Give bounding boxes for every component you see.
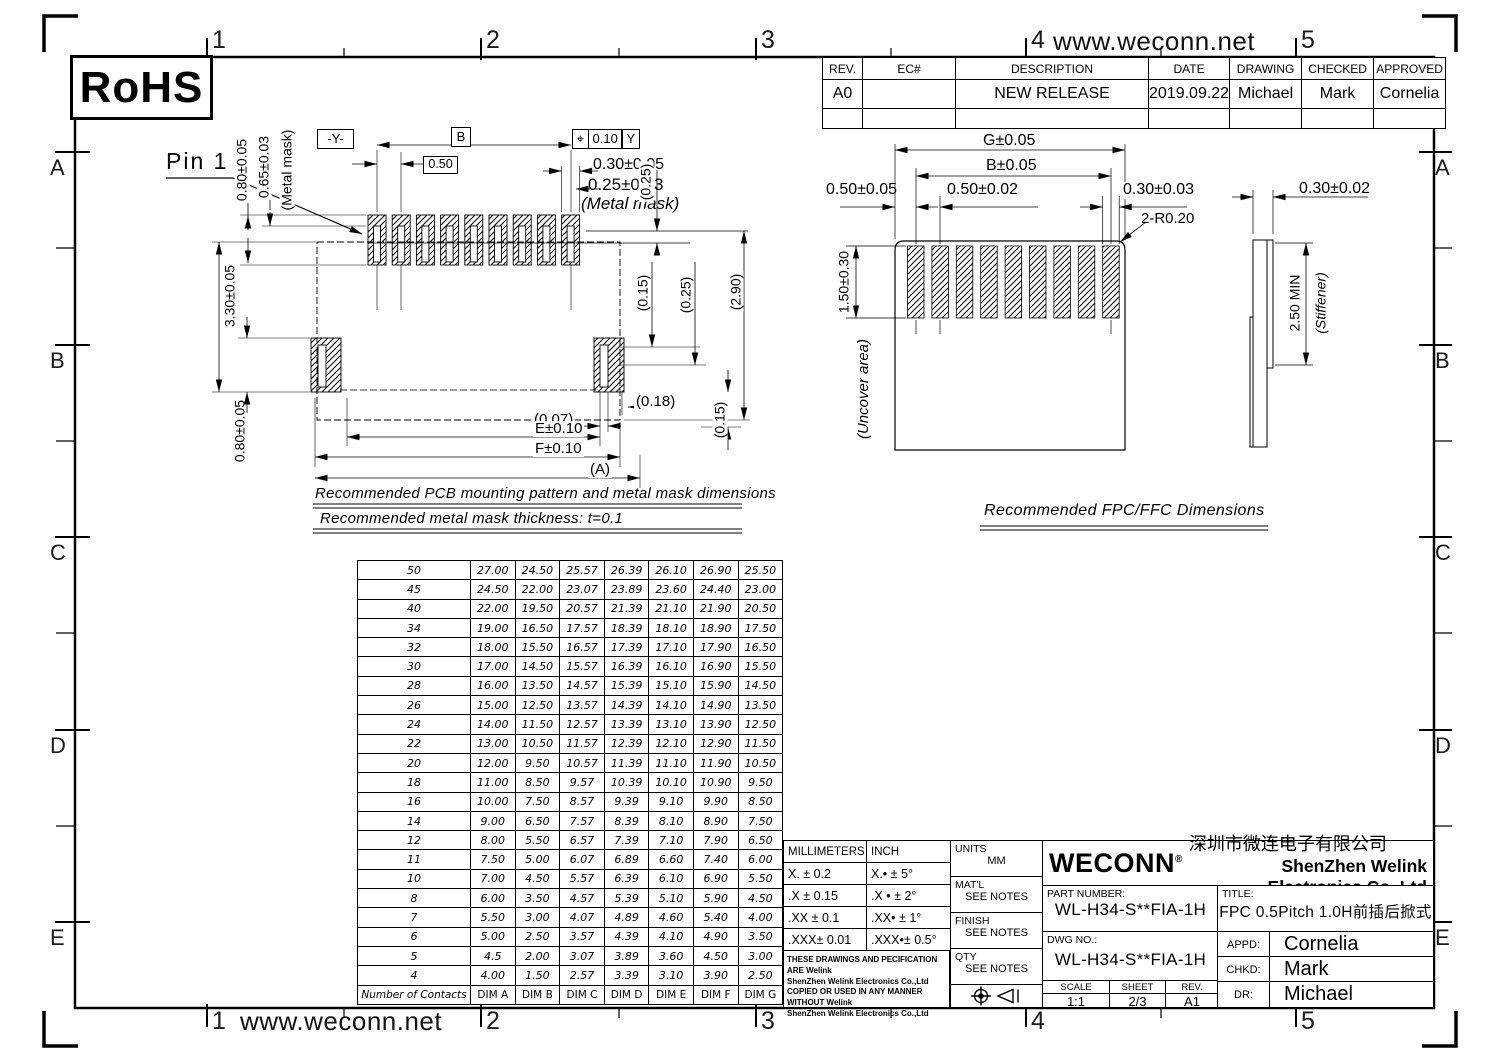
dim-label: 0.30±0.03 [1121,182,1196,199]
scale-value: 1:1 [1043,994,1109,1008]
table-row: 3218.0015.5016.5717.3917.1017.9016.50 [358,638,783,657]
fpc-drawing [840,144,1268,530]
zone-letter: D [50,733,66,759]
copyright-notes: THESE DRAWINGS AND PECIFICATION ARE Weli… [783,950,950,1008]
table-row: 86.003.504.575.395.105.904.50 [358,889,783,908]
zone-number: 3 [761,26,775,55]
weconn-logo: WECONN® [1049,848,1183,879]
dim-label: 0.80±0.05 [233,400,248,462]
fcf-tolerance: 0.10 [588,129,623,149]
zone-number: 5 [1301,26,1315,55]
solder-pads [368,215,580,265]
sheet-label: SHEET [1110,981,1165,994]
sheet-value: 2/3 [1110,994,1165,1008]
appd-value: Cornelia [1270,932,1358,957]
registered-mark: ® [1175,854,1183,865]
position-tolerance-frame: ⌖ 0.10 Y [573,129,640,149]
dr-row: DR: Michael [1217,981,1434,1008]
dwg-no-value: WL-H34-S**FIA-1H [1043,950,1218,970]
table-row: .X ± 0.15.X • ± 2° [784,885,951,907]
table-row: 2816.0013.5014.5715.3915.1015.9014.50 [358,676,783,695]
scale-label: SCALE [1043,981,1109,994]
title-value: FPC 0.5Pitch 1.0H前插后掀式 [1218,900,1433,922]
table-row: 2615.0012.5013.5714.3914.1014.9013.50 [358,696,783,715]
pcb-caption: Recommended PCB mounting pattern and met… [315,486,776,502]
position-tolerance-icon: ⌖ [572,129,589,149]
finish-value: SEE NOTES [951,927,1042,939]
table-row: 117.505.006.076.896.607.406.00 [358,850,783,869]
pitch-flag: 0.50 [423,156,458,174]
dim-label: (Metal mask) [581,195,679,213]
company-header: WECONN® 深圳市微连电子有限公司 ShenZhen Welink Elec… [1042,840,1434,887]
dim-label: 3.30±0.05 [223,265,238,327]
zone-letter: A [50,155,65,181]
dim-label: G±0.05 [983,133,1035,150]
dwg-no-box: DWG NO.: WL-H34-S**FIA-1H [1042,931,1219,982]
table-row [823,109,1446,129]
finish-label: FINISH [951,913,1042,927]
part-number-value: WL-H34-S**FIA-1H [1043,900,1218,920]
table-row: 5027.0024.5025.5726.3926.1026.9025.50 [358,561,783,580]
material-label: MAT'L [951,877,1042,891]
dr-value: Michael [1270,982,1353,1007]
revision-table-body: REV.EC#DESCRIPTIONDATEDRAWINGCHECKEDAPPR… [823,58,1446,129]
dim-label: (2.90) [729,272,744,313]
appd-label: APPD: [1218,932,1270,957]
table-row: 54.52.003.073.893.604.503.00 [358,946,783,965]
stiffener-label: (Stiffener) [1314,272,1329,333]
dim-label: 1.50±0.30 [837,251,852,313]
table-row: 44.001.502.573.393.103.902.50 [358,966,783,985]
dim-label: 0.30±0.02 [1299,181,1370,198]
table-row: 3419.0016.5017.5718.3918.1018.9017.50 [358,618,783,637]
dim-label: F±0.10 [533,441,584,457]
fcf-datum: Y [621,129,640,149]
finish-box: FINISH SEE NOTES [950,912,1043,949]
zone-letter: A [1435,155,1450,181]
zone-number: 2 [486,26,500,55]
dim-label: 0.80±0.05 [235,137,250,203]
dim-label: E±0.10 [533,421,584,437]
dim-label: (0.25) [679,275,694,316]
revision-table: REV.EC#DESCRIPTIONDATEDRAWINGCHECKEDAPPR… [822,57,1446,129]
table-row: 4524.5022.0023.0723.8923.6024.4023.00 [358,580,783,599]
qty-label: QTY [951,949,1042,963]
uncover-area-label: (Uncover area) [856,339,872,439]
title-box: TITLE: FPC 0.5Pitch 1.0H前插后掀式 [1217,885,1434,933]
units-label: UNITS [951,841,1042,855]
chkd-row: CHKD: Mark [1217,956,1434,983]
pin1-label: Pin 1 [166,149,228,173]
chkd-label: CHKD: [1218,957,1270,982]
table-row: A0NEW RELEASE2019.09.22MichaelMarkCornel… [823,80,1446,109]
table-row: 128.005.506.577.397.107.906.50 [358,831,783,850]
fpc-fingers [908,246,1120,318]
dim-label: (0.15) [713,400,728,441]
dim-label: B±0.05 [986,158,1037,175]
zone-letter: E [50,925,65,951]
zone-letter: B [1435,348,1450,374]
company-name-cn: 深圳市微连电子有限公司 [1189,830,1427,856]
dim-label: (0.25) [639,162,654,203]
rev-value: A1 [1166,994,1218,1008]
tolerance-table: MILLIMETERSINCHX. ± 0.2X.• ± 5°.X ± 0.15… [783,840,951,951]
zone-number: 5 [1301,1007,1315,1036]
appd-row: APPD: Cornelia [1217,931,1434,958]
pcb-caption-2: Recommended metal mask thickness: t=0.1 [320,511,623,527]
dimension-table: 5027.0024.5025.5726.3926.1026.9025.50452… [357,560,783,1005]
table-row: 2012.009.5010.5711.3911.1011.9010.50 [358,753,783,772]
table-row: .XX ± 0.1.XX• ± 1° [784,907,951,929]
qty-value: SEE NOTES [951,963,1042,975]
zone-letter: B [50,348,65,374]
table-row: 107.004.505.576.396.106.905.50 [358,869,783,888]
zone-number: 2 [486,1007,500,1036]
fpc-caption: Recommended FPC/FFC Dimensions [984,503,1265,520]
dim-label: 0.50±0.05 [826,182,897,199]
zone-number: 3 [761,1007,775,1036]
datum-y-flag: -Y- [317,129,354,149]
units-box: UNITS MM [950,840,1043,877]
projection-box [950,984,1043,1008]
table-row: 65.002.503.574.394.104.903.50 [358,927,783,946]
table-row: X. ± 0.2X.• ± 5° [784,863,951,885]
material-box: MAT'L SEE NOTES [950,876,1043,913]
zone-letter: C [1435,540,1451,566]
tolerance-table-body: MILLIMETERSINCHX. ± 0.2X.• ± 5°.X ± 0.15… [784,841,951,951]
dim-label: 2.50 MIN [1288,275,1303,332]
table-row: .XXX± 0.01.XXX•± 0.5° [784,929,951,951]
table-row: MILLIMETERSINCH [784,841,951,863]
qty-box: QTY SEE NOTES [950,948,1043,985]
zone-number: 4 [1031,1007,1045,1036]
drawing-sheet: RoHS www.weconn.net www.weconn.net 1 2 3… [0,0,1500,1061]
dim-b-flag: B [451,127,471,147]
zone-letter: D [1435,733,1451,759]
rev-label: REV. [1166,981,1218,994]
table-row: REV.EC#DESCRIPTIONDATEDRAWINGCHECKEDAPPR… [823,58,1446,80]
dim-label: (Metal mask) [280,128,295,213]
dim-label: (0.18) [634,394,677,410]
table-row: 1610.007.508.579.399.109.908.50 [358,792,783,811]
dim-label: 0.65±0.03 [257,134,272,200]
dim-label: (A) [588,462,612,478]
dim-label: 0.50±0.02 [945,182,1020,199]
rohs-logo: RoHS [70,55,213,120]
units-value: MM [951,855,1042,867]
zone-number: 4 [1031,26,1045,55]
table-row: 3017.0014.5015.5716.3916.1016.9015.50 [358,657,783,676]
anchor-pads [311,338,624,392]
scale-sheet-rev-row: SCALE 1:1 SHEET 2/3 REV. A1 [1042,980,1219,1008]
part-number-label: PART NUMBER: [1043,886,1218,900]
part-number-box: PART NUMBER: WL-H34-S**FIA-1H [1042,885,1219,933]
table-row: 75.503.004.074.894.605.404.00 [358,908,783,927]
table-row: 2213.0010.5011.5712.3912.1012.9011.50 [358,734,783,753]
dwg-no-label: DWG NO.: [1043,932,1218,946]
zone-letter: C [50,540,66,566]
zone-number: 1 [212,1007,226,1036]
zone-number: 1 [212,26,226,55]
table-row: 4022.0019.5020.5721.3921.1021.9020.50 [358,599,783,618]
third-angle-projection-icon [970,986,1024,1006]
dr-label: DR: [1218,982,1270,1007]
material-value: SEE NOTES [951,891,1042,903]
website-url-top: www.weconn.net [1053,26,1255,57]
title-label: TITLE: [1218,886,1433,900]
zone-letter: E [1435,925,1450,951]
table-row: Number of ContactsDIM ADIM BDIM CDIM DDI… [358,985,783,1004]
dim-table-body: 5027.0024.5025.5726.3926.1026.9025.50452… [358,561,783,1005]
dim-label: 2-R0.20 [1141,211,1194,227]
pin1-leader [233,178,362,234]
chkd-value: Mark [1270,957,1328,982]
table-row: 2414.0011.5012.5713.3913.1013.9012.50 [358,715,783,734]
table-row: 1811.008.509.5710.3910.1010.909.50 [358,773,783,792]
table-row: 149.006.507.578.398.108.907.50 [358,811,783,830]
website-url-bottom: www.weconn.net [240,1006,442,1037]
dim-label: (0.15) [636,273,651,314]
